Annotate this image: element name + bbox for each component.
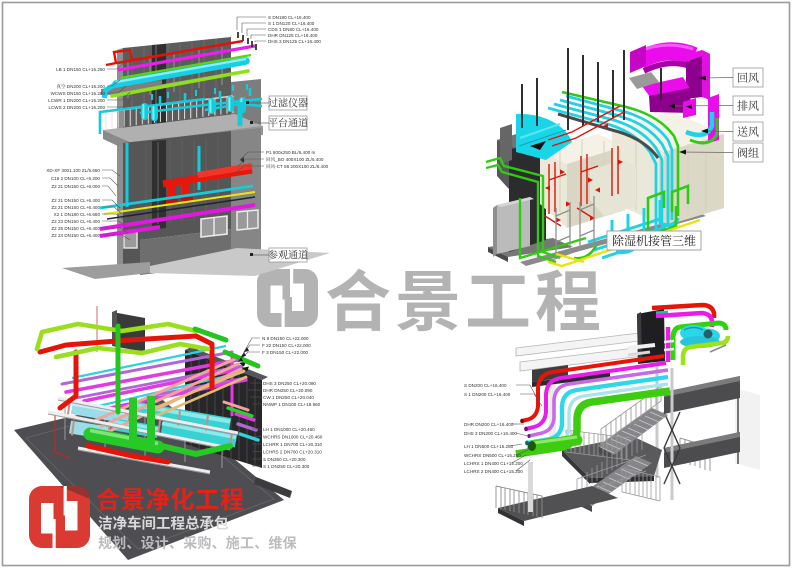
svg-text:F 3 DN150 CL+22.000: F 3 DN150 CL+22.000 (262, 350, 309, 355)
svg-text:C16 2 DN100 CL+6.200: C16 2 DN100 CL+6.200 (51, 176, 101, 181)
svg-text:参观通道: 参观通道 (268, 247, 308, 262)
svg-text:S 1 DN250 CL+20.300: S 1 DN250 CL+20.300 (263, 464, 310, 469)
svg-text:DHS 3 DN250 CL+20.090: DHS 3 DN250 CL+20.090 (263, 381, 316, 386)
svg-text:S 1 DN120 CL+16.400: S 1 DN120 CL+16.400 (268, 21, 315, 26)
svg-text:CDS 1 DN80 CL+16.400: CDS 1 DN80 CL+16.400 (268, 27, 319, 32)
svg-text:Z2 25 DN150 CL+6.400: Z2 25 DN150 CL+6.400 (51, 226, 100, 231)
svg-text:合景工程: 合景工程 (325, 249, 605, 345)
svg-text:Z2 21 DN150 CL+6.000: Z2 21 DN150 CL+6.000 (51, 184, 100, 189)
svg-text:除湿机接管三维: 除湿机接管三维 (612, 232, 696, 249)
svg-text:规划、设计、采购、施工、维保: 规划、设计、采购、施工、维保 (98, 533, 297, 553)
svg-text:回风_BO 400X100 ZL/5.400: 回风_BO 400X100 ZL/5.400 (266, 156, 324, 163)
svg-text:LCHRS 2 DN400 CL+15.200: LCHRS 2 DN400 CL+15.200 (464, 469, 523, 474)
svg-text:DHS 3 DN125 CL+16.400: DHS 3 DN125 CL+16.400 (268, 39, 321, 44)
svg-text:WCHRS DN500 CL+15.250: WCHRS DN500 CL+15.250 (464, 453, 521, 458)
svg-text:过滤仪器: 过滤仪器 (268, 95, 308, 110)
svg-text:S 1 DN200 CL+16.400: S 1 DN200 CL+16.400 (464, 392, 511, 397)
svg-text:DHR DN250 CL+20.090: DHR DN250 CL+20.090 (263, 388, 313, 393)
svg-text:LCWS 2 DN200 CL+15.200: LCWS 2 DN200 CL+15.200 (48, 105, 105, 111)
svg-text:回风-CT 56 200X100 ZL/6.400: 回风-CT 56 200X100 ZL/6.400 (266, 163, 329, 170)
svg-text:LH 1 DN500 CL+15.250: LH 1 DN500 CL+15.250 (464, 444, 514, 449)
svg-text:WCHRS DN1000 CL+20.460: WCHRS DN1000 CL+20.460 (263, 435, 323, 440)
svg-text:送风: 送风 (737, 124, 759, 140)
svg-text:Z2 24 DN150 CL+6.400: Z2 24 DN150 CL+6.400 (51, 233, 100, 238)
svg-text:F 22 DN150 CL+22.000: F 22 DN150 CL+22.000 (262, 343, 311, 348)
svg-text:阀组: 阀组 (737, 145, 759, 161)
svg-text:Z2 21 DN150 CL+6.400: Z2 21 DN150 CL+6.400 (51, 205, 100, 210)
svg-text:LCHRS 2 DN700 CL+20.310: LCHRS 2 DN700 CL+20.310 (263, 450, 322, 455)
svg-text:Z2 23 DN150 CL+6.400: Z2 23 DN150 CL+6.400 (51, 219, 100, 224)
svg-text:CW 1 DN250 CL+20.040: CW 1 DN250 CL+20.040 (263, 395, 314, 400)
svg-text:S DN180 CL+16.400: S DN180 CL+16.400 (268, 15, 311, 20)
svg-text:Z2 21 DN150 CL+6.400: Z2 21 DN150 CL+6.400 (51, 198, 100, 203)
svg-text:LB 1 DN150 CL+15.250: LB 1 DN150 CL+15.250 (56, 67, 105, 73)
svg-text:S DN350 CL+20.300: S DN350 CL+20.300 (263, 457, 306, 462)
svg-text:合景净化工程: 合景净化工程 (96, 480, 245, 515)
svg-text:DHS 3 DN200 CL+16.400: DHS 3 DN200 CL+16.400 (464, 431, 517, 436)
svg-text:XD-XF 3001.100 ZL/5.650: XD-XF 3001.100 ZL/5.650 (46, 168, 100, 173)
svg-text:LH 1 DN1000 CL+20.460: LH 1 DN1000 CL+20.460 (263, 427, 315, 432)
svg-text:DHR DN200 CL+16.400: DHR DN200 CL+16.400 (464, 422, 514, 427)
svg-text:平台通道: 平台通道 (268, 115, 308, 130)
svg-text:NNWP 1 DN100 CL+19.960: NNWP 1 DN100 CL+19.960 (263, 402, 321, 407)
svg-text:回风: 回风 (737, 70, 759, 86)
svg-text:LCHRR 1 DN700 CL+20.310: LCHRR 1 DN700 CL+20.310 (263, 442, 323, 447)
svg-text:S DN200 CL+16.400: S DN200 CL+16.400 (464, 383, 507, 388)
svg-text:排风: 排风 (737, 98, 759, 114)
svg-text:X2 1 DN180 CL+6.680: X2 1 DN180 CL+6.680 (54, 212, 101, 217)
svg-text:DHR DN125 CL+16.400: DHR DN125 CL+16.400 (268, 33, 318, 38)
svg-text:P1 800x250 BL/6.400 m: P1 800x250 BL/6.400 m (266, 150, 315, 156)
svg-text:LCWR 1 DN200 CL+15.200: LCWR 1 DN200 CL+15.200 (48, 98, 105, 104)
svg-text:WCWS DN150 CL+15.250: WCWS DN150 CL+15.250 (50, 91, 105, 97)
svg-text:N 9 DN150 CL+22.000: N 9 DN150 CL+22.000 (262, 336, 309, 341)
svg-text:洁净车间工程总承包: 洁净车间工程总承包 (98, 513, 229, 534)
svg-text:真空 DN200 CL+15.200: 真空 DN200 CL+15.200 (56, 83, 105, 90)
